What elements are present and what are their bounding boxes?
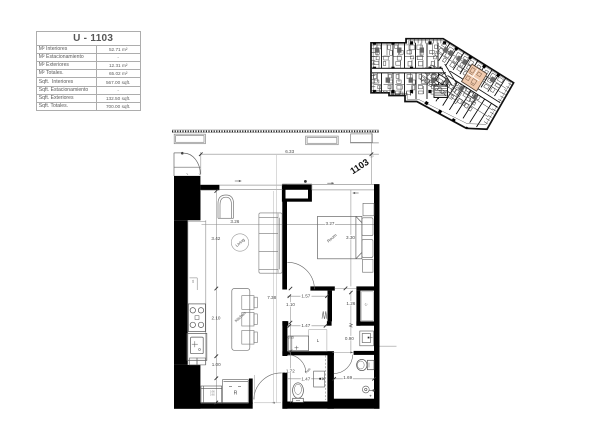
svg-text:L: L xyxy=(317,338,320,343)
svg-text:1.72: 1.72 xyxy=(286,368,295,373)
svg-text:1.47: 1.47 xyxy=(301,376,310,381)
svg-text:1.00: 1.00 xyxy=(212,362,221,367)
svg-text:Living: Living xyxy=(234,237,246,248)
svg-text:1.10: 1.10 xyxy=(286,302,295,307)
svg-text:3.26: 3.26 xyxy=(230,219,239,224)
svg-text:0.90: 0.90 xyxy=(345,336,354,341)
svg-text:0.60: 0.60 xyxy=(210,394,215,397)
svg-text:C.: C. xyxy=(364,302,369,307)
svg-text:7.38: 7.38 xyxy=(267,295,276,300)
svg-text:2.10: 2.10 xyxy=(212,316,221,321)
svg-text:1.57: 1.57 xyxy=(301,293,310,298)
svg-text:1.26: 1.26 xyxy=(346,301,355,306)
svg-text:R: R xyxy=(234,391,238,397)
svg-text:Room: Room xyxy=(326,232,338,243)
svg-text:1.47: 1.47 xyxy=(301,323,310,328)
svg-text:A1: A1 xyxy=(191,279,195,283)
svg-text:Kitchen: Kitchen xyxy=(234,310,248,323)
svg-text:3.42: 3.42 xyxy=(211,236,220,241)
svg-text:-90: -90 xyxy=(369,154,375,160)
svg-text:3.27: 3.27 xyxy=(326,221,335,226)
svg-text:0.95: 0.95 xyxy=(288,336,295,340)
svg-text:6.33: 6.33 xyxy=(285,149,294,154)
svg-text:3.30: 3.30 xyxy=(346,235,355,240)
svg-text:1103: 1103 xyxy=(348,157,370,176)
svg-text:1.69: 1.69 xyxy=(343,375,352,380)
